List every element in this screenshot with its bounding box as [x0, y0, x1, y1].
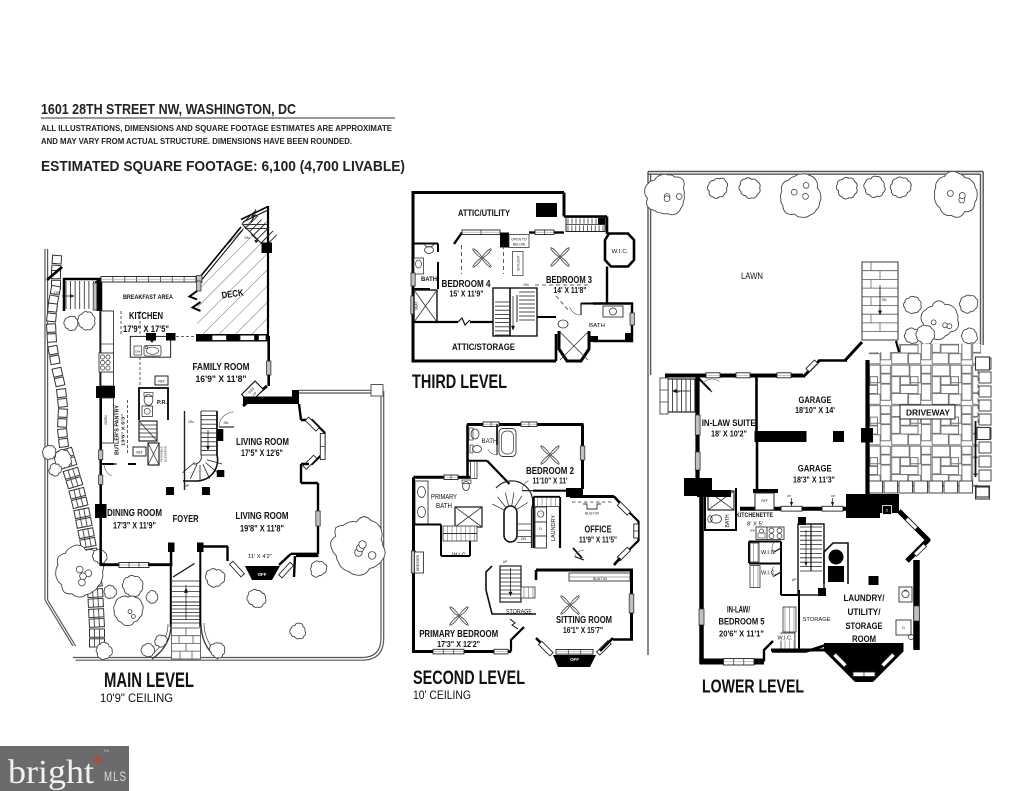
svg-text:17'9" X 17'5": 17'9" X 17'5" [123, 324, 169, 334]
svg-text:bright: bright [8, 754, 95, 791]
svg-text:GARAGE: GARAGE [798, 464, 832, 475]
svg-text:OVEN: OVEN [104, 415, 108, 425]
svg-text:DN: DN [54, 290, 60, 295]
svg-text:SECOND LEVEL: SECOND LEVEL [413, 668, 525, 689]
svg-text:W.I.C.: W.I.C. [452, 553, 467, 559]
svg-text:OFF: OFF [258, 572, 267, 577]
svg-text:LAUNDRY: LAUNDRY [551, 514, 557, 541]
svg-text:1601 28TH STREET NW, WASHINGTO: 1601 28TH STREET NW, WASHINGTON, DC [41, 101, 296, 118]
svg-text:W.I.C.: W.I.C. [761, 550, 776, 556]
svg-text:IN-LAW SUITE: IN-LAW SUITE [702, 418, 756, 429]
svg-text:17'3" X 11'9": 17'3" X 11'9" [113, 521, 156, 531]
svg-text:PRIMARY: PRIMARY [431, 494, 457, 501]
svg-text:TM: TM [103, 748, 109, 753]
svg-text:AND MAY VARY FROM ACTUAL STRUC: AND MAY VARY FROM ACTUAL STRUCTURE. DIME… [41, 137, 352, 146]
svg-text:P.R.: P.R. [157, 400, 167, 406]
svg-text:DN: DN [882, 298, 887, 302]
svg-text:UP: UP [787, 494, 791, 498]
svg-text:THIRD LEVEL: THIRD LEVEL [412, 372, 507, 393]
svg-text:MLS: MLS [104, 768, 127, 784]
svg-text:W: W [904, 589, 907, 593]
svg-text:D: D [902, 626, 905, 630]
svg-text:LAWN: LAWN [741, 271, 763, 281]
svg-text:W.I.C.: W.I.C. [612, 249, 629, 255]
svg-text:UP: UP [831, 494, 835, 498]
svg-text:BUILT-IN: BUILT-IN [593, 577, 607, 581]
svg-text:ESTIMATED SQUARE FOOTAGE: 6,10: ESTIMATED SQUARE FOOTAGE: 6,100 (4,700 L… [41, 158, 405, 175]
svg-text:19'8" X 11'8": 19'8" X 11'8" [240, 524, 284, 534]
svg-text:REF: REF [158, 380, 164, 384]
svg-text:SEAT: SEAT [415, 302, 419, 311]
svg-text:LIVING ROOM: LIVING ROOM [236, 510, 289, 522]
svg-text:MAIN LEVEL: MAIN LEVEL [104, 669, 194, 692]
svg-text:W.I.C.: W.I.C. [761, 571, 776, 577]
svg-text:16'1" X 15'7": 16'1" X 15'7" [563, 625, 603, 635]
svg-text:20'6" X 11'1": 20'6" X 11'1" [719, 629, 764, 639]
svg-text:OPEN TO: OPEN TO [511, 238, 526, 242]
svg-text:KITCHEN: KITCHEN [129, 310, 163, 322]
svg-text:BATH: BATH [436, 503, 452, 510]
svg-text:10'9" CEILING: 10'9" CEILING [100, 691, 173, 705]
svg-text:FOYER: FOYER [173, 513, 199, 525]
svg-text:ALL ILLUSTRATIONS, DIMENSIONS: ALL ILLUSTRATIONS, DIMENSIONS AND SQUARE… [41, 124, 393, 133]
svg-text:17'3" X 12'2": 17'3" X 12'2" [437, 639, 480, 649]
svg-text:UP: UP [792, 578, 797, 582]
svg-text:SKYLIGHT: SKYLIGHT [517, 255, 521, 271]
svg-text:LIVING ROOM: LIVING ROOM [236, 436, 289, 448]
svg-text:KITCHENETTE: KITCHENETTE [736, 512, 774, 519]
svg-text:BATH: BATH [589, 323, 605, 329]
svg-text:BATH: BATH [421, 276, 437, 283]
svg-text:DRIVEWAY: DRIVEWAY [906, 408, 950, 418]
svg-text:REF: REF [136, 451, 142, 455]
svg-text:BATH: BATH [482, 438, 498, 445]
svg-text:OFF: OFF [570, 657, 579, 662]
svg-text:ATTIC/STORAGE: ATTIC/STORAGE [452, 342, 515, 352]
svg-text:10' CEILING: 10' CEILING [413, 688, 471, 702]
svg-text:BREAKFAST AREA: BREAKFAST AREA [123, 295, 174, 301]
svg-text:DN: DN [244, 236, 250, 240]
svg-text:18'10" X 14': 18'10" X 14' [795, 405, 835, 415]
svg-text:11'9" X 11'5": 11'9" X 11'5" [579, 535, 617, 545]
svg-text:11' X 4'2": 11' X 4'2" [248, 554, 272, 560]
svg-text:STORAGE: STORAGE [803, 617, 831, 623]
svg-text:DN: DN [188, 420, 194, 424]
svg-text:UP: UP [185, 484, 191, 488]
svg-text:BELOW: BELOW [513, 243, 526, 247]
svg-text:STORAGE: STORAGE [846, 621, 883, 632]
svg-text:ELEVATOR: ELEVATOR [164, 445, 168, 462]
svg-text:DN: DN [224, 421, 229, 425]
svg-text:UP: UP [503, 560, 508, 564]
svg-text:IN-LAW/: IN-LAW/ [727, 605, 750, 615]
svg-text:18' X 10'2": 18' X 10'2" [711, 429, 747, 439]
svg-text:ATTIC/UTILITY: ATTIC/UTILITY [458, 208, 510, 218]
svg-text:16'9" X 11'8": 16'9" X 11'8" [196, 374, 247, 384]
svg-text:15' X 11'9": 15' X 11'9" [450, 289, 484, 299]
svg-text:BEDROOM 5: BEDROOM 5 [719, 617, 765, 627]
svg-text:BATH: BATH [725, 514, 731, 527]
svg-text:13'6" X 5'3": 13'6" X 5'3" [121, 414, 126, 446]
svg-text:DINING ROOM: DINING ROOM [107, 507, 162, 519]
svg-text:LAUNDRY/: LAUNDRY/ [844, 593, 885, 604]
svg-text:FAMILY ROOM: FAMILY ROOM [193, 361, 250, 373]
svg-text:UTILITY/: UTILITY/ [848, 607, 881, 618]
svg-text:DW: DW [750, 529, 755, 533]
svg-text:DW: DW [135, 350, 140, 354]
svg-text:W.I.C.: W.I.C. [778, 636, 793, 642]
svg-text:DRESSER: DRESSER [416, 554, 420, 571]
svg-text:DN: DN [521, 537, 527, 541]
svg-text:LOWER LEVEL: LOWER LEVEL [702, 677, 804, 697]
svg-text:BUILT-IN: BUILT-IN [585, 512, 599, 516]
svg-text:REF: REF [761, 499, 767, 503]
svg-text:DN: DN [523, 283, 529, 287]
svg-text:STORAGE: STORAGE [506, 609, 532, 616]
svg-text:14' X 11'8": 14' X 11'8" [554, 285, 587, 295]
svg-text:11'10" X 11': 11'10" X 11' [533, 476, 568, 486]
svg-text:18'3" X 11'3": 18'3" X 11'3" [793, 475, 835, 485]
svg-text:17'5" X 12'6": 17'5" X 12'6" [241, 448, 283, 458]
